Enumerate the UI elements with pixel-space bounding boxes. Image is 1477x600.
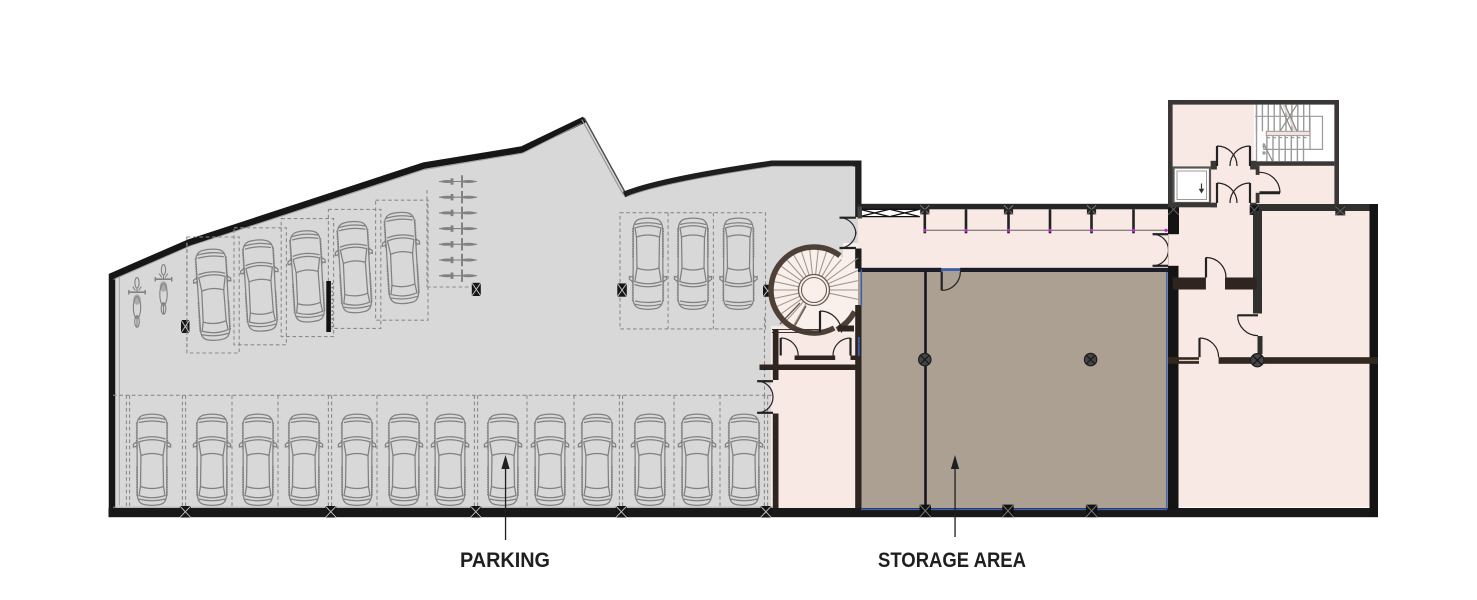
svg-text:STORAGE AREA: STORAGE AREA	[878, 548, 1026, 572]
svg-text:PARKING: PARKING	[460, 548, 550, 572]
